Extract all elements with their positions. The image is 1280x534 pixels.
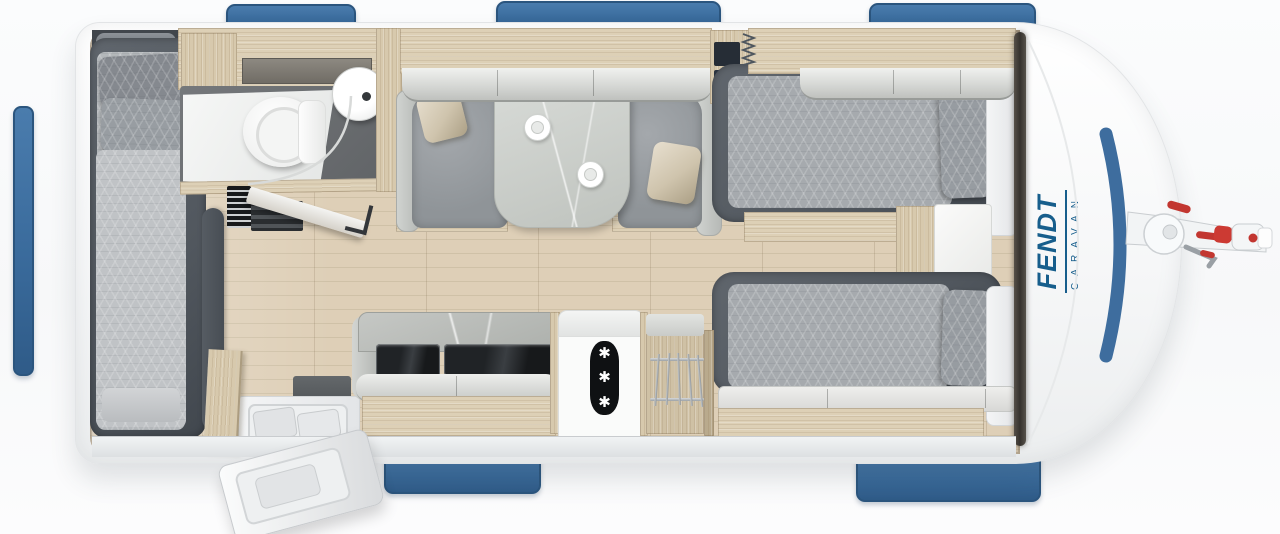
bunk-spring [743, 34, 754, 65]
nose-inner-seam [1028, 40, 1078, 444]
nose-stripe [1106, 134, 1120, 356]
coupling-dot [1249, 234, 1258, 243]
caravan-floorplan: ✱ ✱ ✱ FENDT CARAVAN [0, 0, 1280, 534]
overlay-graphics [0, 0, 1280, 534]
shower-door-arc [248, 96, 351, 184]
coupling-knob [1213, 225, 1233, 244]
coupling-tip [1258, 228, 1272, 248]
jockey-wheel-hub [1163, 225, 1177, 239]
jockey-handle [1166, 200, 1191, 214]
